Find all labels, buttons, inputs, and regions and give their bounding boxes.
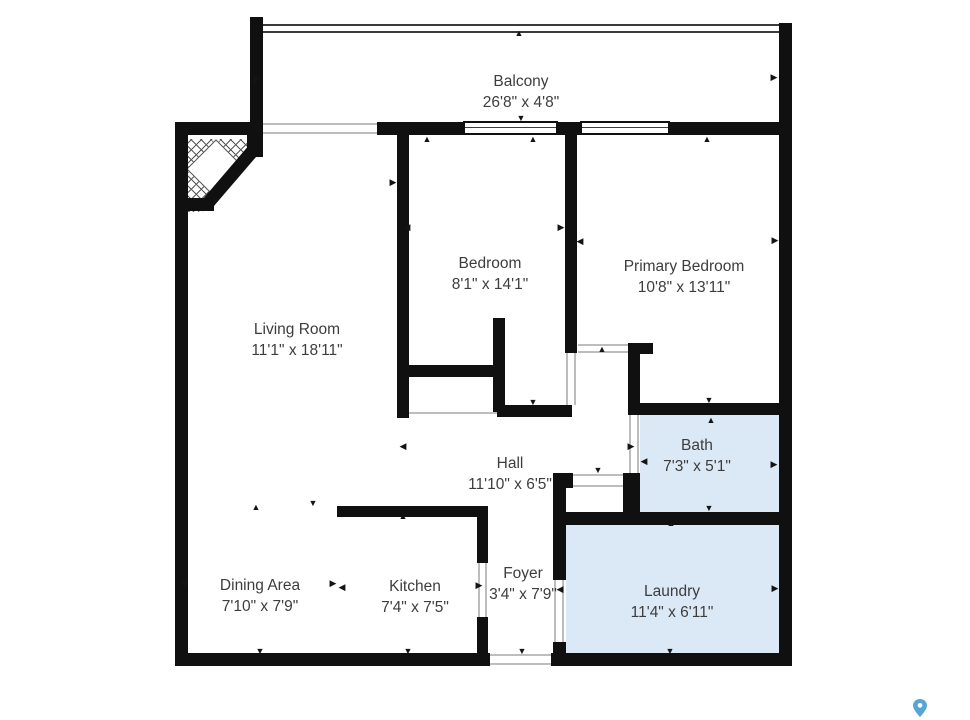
room-dims: 7'10" x 7'9" — [220, 596, 300, 617]
measure-marker-right-icon — [769, 582, 781, 594]
wall-top — [558, 122, 580, 135]
measure-marker-up-icon — [421, 133, 433, 145]
balcony-railing — [263, 24, 779, 26]
measure-marker-down-icon — [515, 112, 527, 124]
floor-plan-canvas: Balcony 26'8" x 4'8" Bedroom 8'1" x 14'1… — [0, 0, 970, 720]
room-dims: 11'4" x 6'11" — [631, 602, 714, 623]
measure-marker-up-icon — [397, 510, 409, 522]
kitchen-right-wall — [477, 506, 488, 563]
measure-marker-right-icon — [251, 72, 263, 84]
room-label-hall: Hall 11'10" x 6'5" — [468, 453, 552, 495]
measure-marker-down-icon — [307, 497, 319, 509]
room-name: Kitchen — [381, 576, 449, 597]
measure-marker-right-icon — [387, 176, 399, 188]
window — [580, 121, 670, 135]
room-label-kitchen: Kitchen 7'4" x 7'5" — [381, 576, 449, 618]
room-name: Living Room — [251, 319, 342, 340]
hall-closet-opening — [409, 412, 497, 414]
measure-marker-up-icon — [701, 133, 713, 145]
measure-marker-down-icon — [703, 502, 715, 514]
measure-marker-down-icon — [664, 645, 676, 657]
measure-marker-left-icon — [397, 440, 409, 452]
measure-marker-right-icon — [768, 458, 780, 470]
kitchen-top-wall — [337, 506, 488, 517]
balcony-opening — [263, 123, 377, 125]
hall-closet-wall — [623, 473, 640, 515]
measure-marker-right-icon — [555, 221, 567, 233]
room-name: Dining Area — [220, 575, 300, 596]
closet-wall — [397, 365, 505, 377]
room-name: Balcony — [483, 71, 559, 92]
measure-marker-down-icon — [703, 394, 715, 406]
wall-top — [377, 122, 463, 135]
fireplace-base-wall — [185, 198, 214, 211]
measure-marker-left-icon — [574, 235, 586, 247]
bedroom-door-opening — [566, 353, 568, 405]
kitchen-right-wall — [477, 617, 488, 657]
room-label-primary-bedroom: Primary Bedroom 10'8" x 13'11" — [624, 256, 745, 298]
room-label-bath: Bath 7'3" x 5'1" — [663, 435, 731, 477]
room-name: Hall — [468, 453, 552, 474]
room-dims: 7'3" x 5'1" — [663, 456, 731, 477]
measure-marker-up-icon — [705, 414, 717, 426]
room-name: Primary Bedroom — [624, 256, 745, 277]
laundry-left-wall — [553, 642, 566, 666]
room-dims: 10'8" x 13'11" — [624, 277, 745, 298]
measure-marker-up-icon — [665, 517, 677, 529]
measure-marker-left-icon — [401, 221, 413, 233]
room-dims: 11'10" x 6'5" — [468, 474, 552, 495]
room-label-living-room: Living Room 11'1" x 18'11" — [251, 319, 342, 361]
measure-marker-right-icon — [769, 234, 781, 246]
kitchen-door-opening — [485, 563, 487, 617]
room-name: Bath — [663, 435, 731, 456]
room-label-balcony: Balcony 26'8" x 4'8" — [483, 71, 559, 113]
closet-wall — [493, 318, 505, 412]
measure-marker-down-icon — [527, 396, 539, 408]
balcony-opening — [263, 132, 377, 134]
measure-marker-down-icon — [516, 645, 528, 657]
map-pin-icon — [913, 699, 927, 717]
room-dims: 11'1" x 18'11" — [251, 340, 342, 361]
bedroom-door-opening — [574, 353, 576, 405]
measure-marker-left-icon — [178, 576, 190, 588]
measure-marker-right-icon — [625, 440, 637, 452]
measure-marker-down-icon — [592, 464, 604, 476]
measure-marker-up-icon — [527, 133, 539, 145]
room-name: Laundry — [631, 581, 714, 602]
measure-marker-down-icon — [402, 645, 414, 657]
room-label-dining-area: Dining Area 7'10" x 7'9" — [220, 575, 300, 617]
measure-marker-up-icon — [513, 27, 525, 39]
measure-marker-right-icon — [768, 71, 780, 83]
room-label-laundry: Laundry 11'4" x 6'11" — [631, 581, 714, 623]
measure-marker-up-icon — [250, 501, 262, 513]
window — [463, 121, 558, 135]
fireplace-corner-wall — [247, 135, 263, 157]
measure-marker-left-icon — [336, 581, 348, 593]
wall-top-left — [175, 122, 263, 135]
measure-marker-left-icon — [638, 455, 650, 467]
room-name: Foyer — [489, 563, 557, 584]
room-dims: 3'4" x 7'9" — [489, 584, 557, 605]
wall-right — [779, 23, 792, 666]
room-dims: 26'8" x 4'8" — [483, 92, 559, 113]
measure-marker-right-icon — [473, 579, 485, 591]
measure-marker-down-icon — [254, 645, 266, 657]
room-dims: 7'4" x 7'5" — [381, 597, 449, 618]
closet-door-opening — [573, 485, 623, 487]
wall-top — [670, 122, 792, 135]
room-name: Bedroom — [452, 253, 528, 274]
room-dims: 8'1" x 14'1" — [452, 274, 528, 295]
wall-bottom — [175, 653, 490, 666]
room-label-bedroom: Bedroom 8'1" x 14'1" — [452, 253, 528, 295]
entry-door-opening — [490, 663, 551, 665]
room-label-foyer: Foyer 3'4" x 7'9" — [489, 563, 557, 605]
measure-marker-up-icon — [596, 343, 608, 355]
